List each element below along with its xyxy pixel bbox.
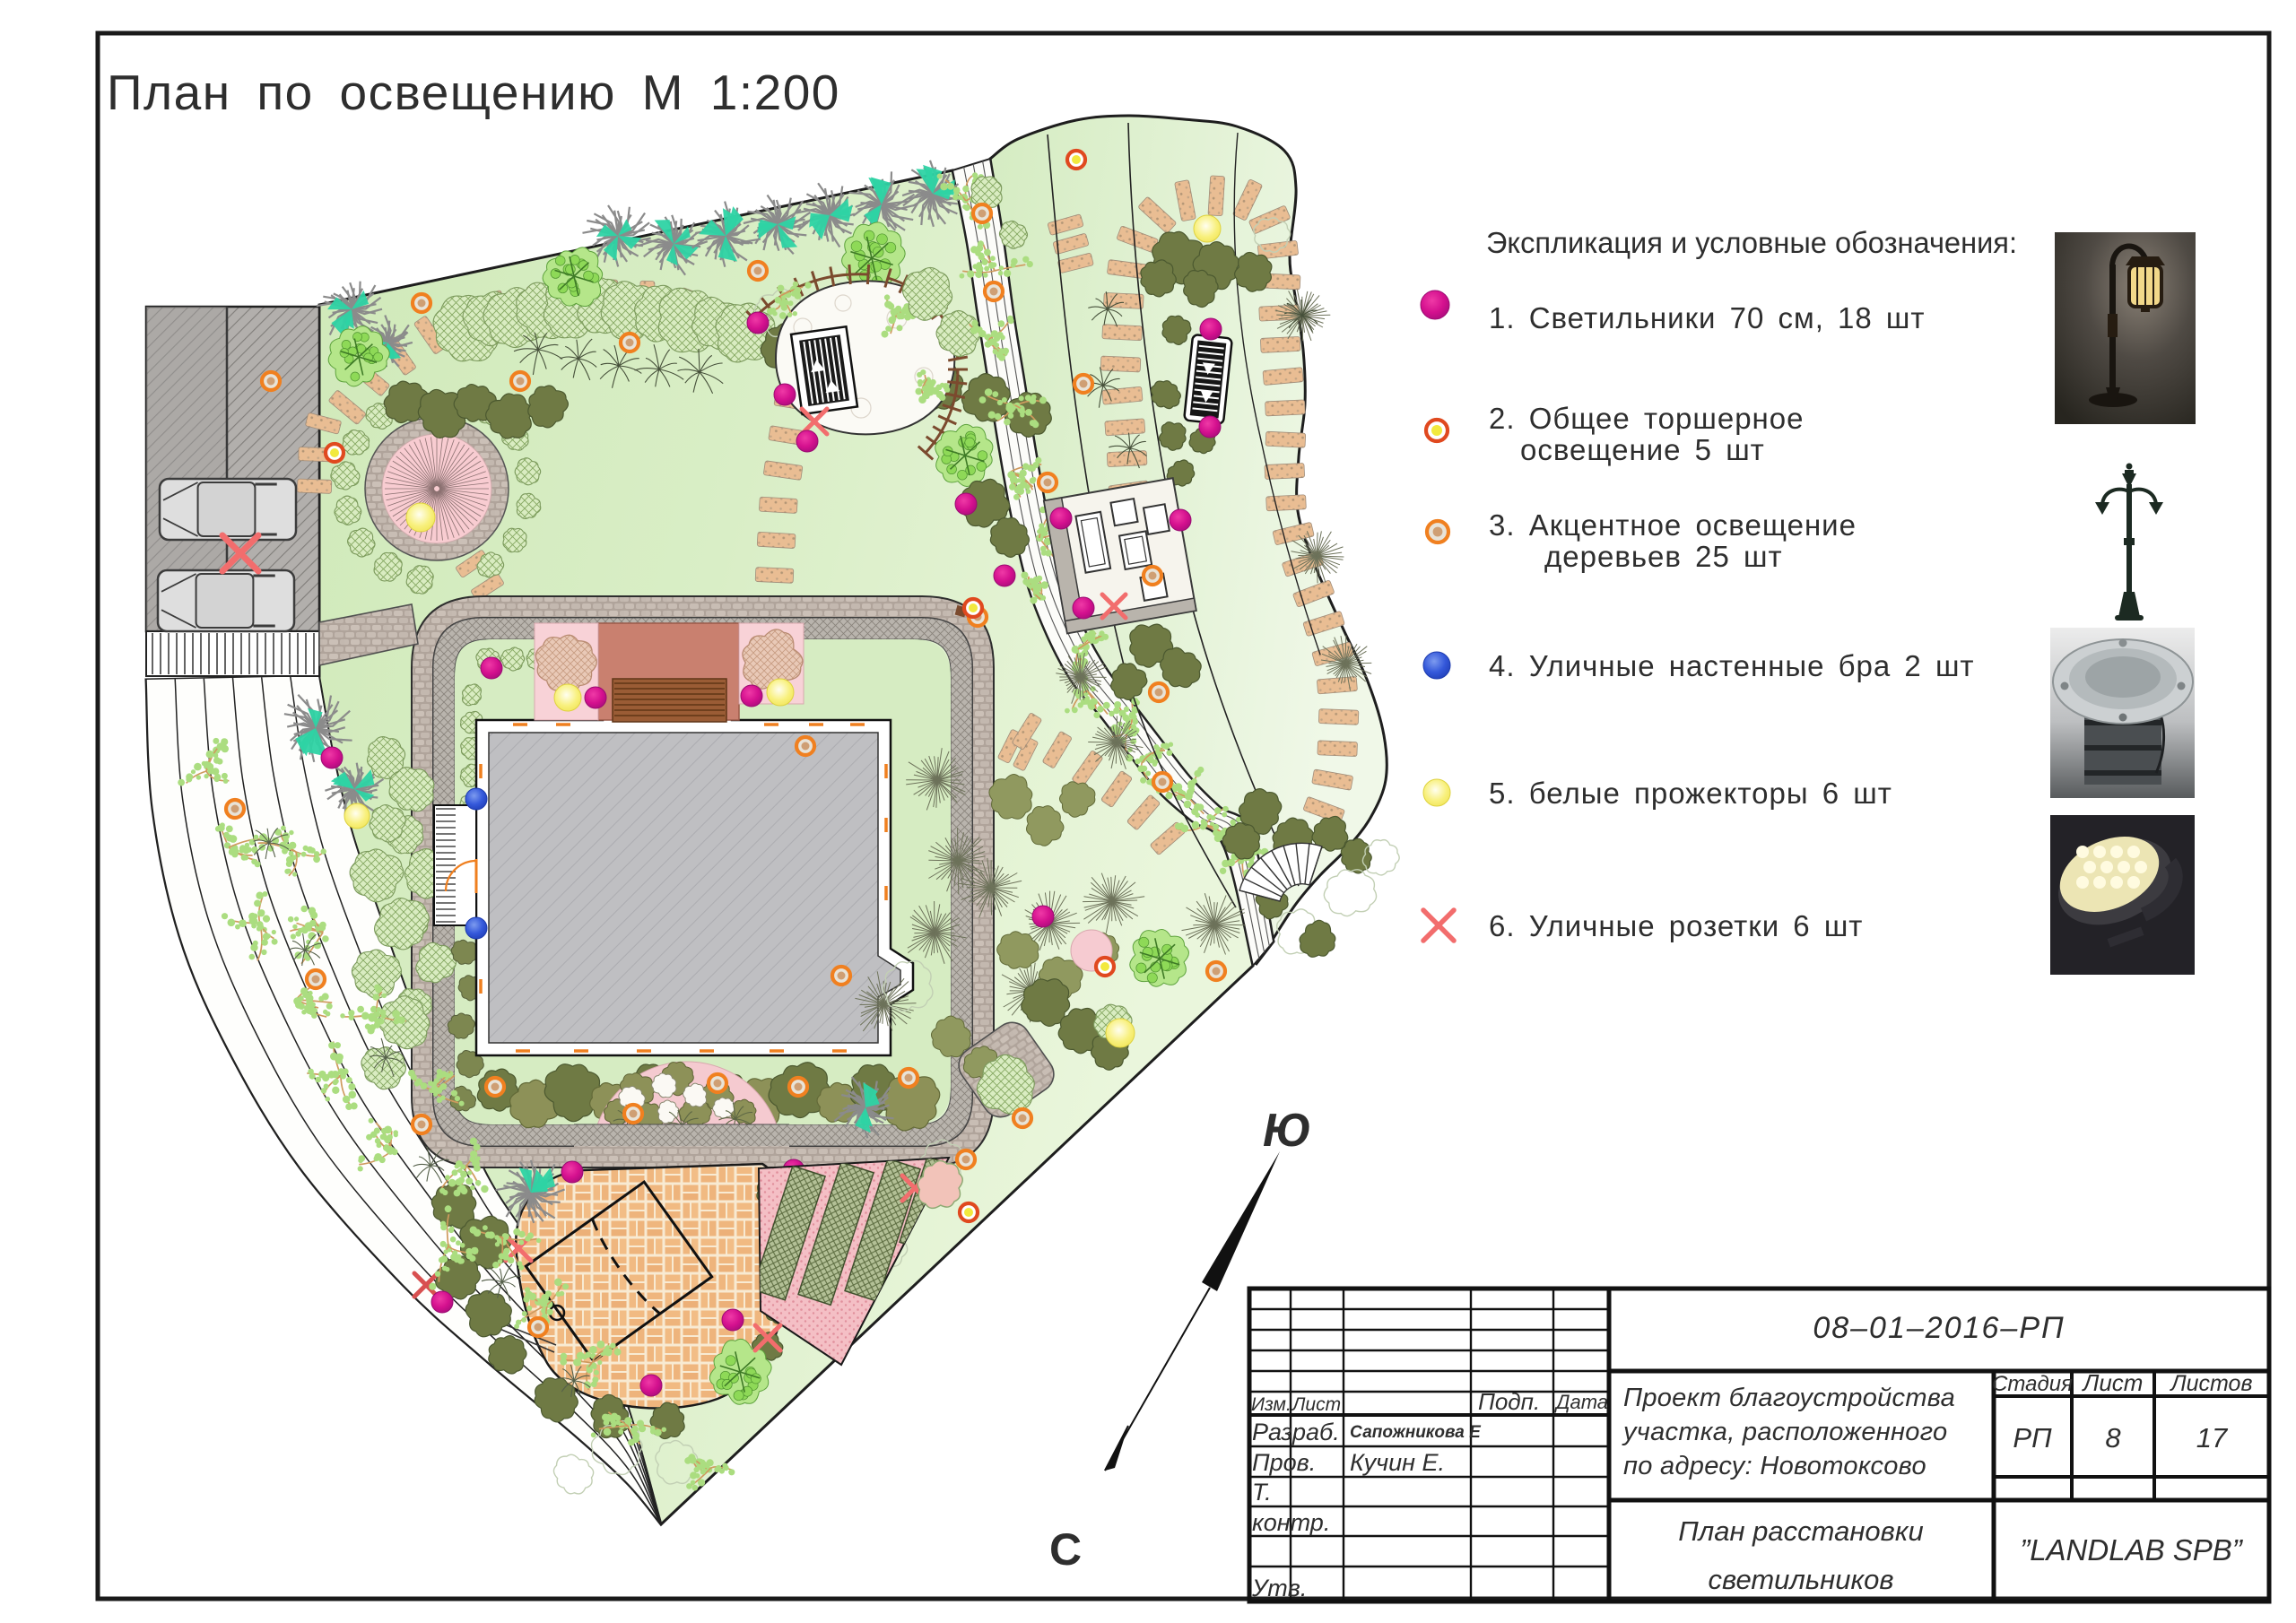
svg-text:по адресу: Новотоксово: по адресу: Новотоксово (1623, 1452, 1926, 1480)
svg-text:Дата: Дата (1553, 1391, 1608, 1413)
svg-text:Подп.: Подп. (1478, 1388, 1540, 1415)
svg-text:План расстановки: План расстановки (1678, 1515, 1923, 1547)
svg-text:Проект благоустройства: Проект благоустройства (1623, 1384, 1955, 1412)
svg-text:Разраб.: Разраб. (1252, 1419, 1340, 1445)
svg-text:17: 17 (2196, 1422, 2229, 1454)
svg-text:светильников: светильников (1708, 1564, 1893, 1595)
svg-text:08–01–2016–РП: 08–01–2016–РП (1813, 1311, 2065, 1345)
svg-text:Ю: Ю (1263, 1105, 1311, 1157)
svg-text:Лист: Лист (1291, 1394, 1341, 1415)
svg-text:Изм.: Изм. (1251, 1394, 1291, 1415)
svg-text:освещение 5 шт: освещение 5 шт (1520, 433, 1765, 466)
svg-text:6. Уличные розетки 6 шт: 6. Уличные розетки 6 шт (1489, 909, 1863, 942)
svg-text:5. белые прожекторы 6 шт: 5. белые прожекторы 6 шт (1489, 777, 1892, 810)
svg-text:”LANDLAB SPB”: ”LANDLAB SPB” (2020, 1533, 2244, 1567)
svg-text:Экспликация и условные обознач: Экспликация и условные обозначения: (1486, 226, 2017, 259)
svg-text:1. Светильники 70 см, 18: 1. Светильники 70 см, 18 шт (1489, 301, 1926, 334)
svg-text:3. Акцентное освещение: 3. Акцентное освещение (1489, 508, 1857, 542)
svg-text:деревьев 25 шт: деревьев 25 шт (1544, 540, 1783, 573)
svg-text:контр.: контр. (1252, 1509, 1330, 1536)
svg-text:участка, расположенного: участка, расположенного (1622, 1418, 1947, 1446)
svg-text:Т.: Т. (1252, 1479, 1272, 1506)
svg-text:Стадия: Стадия (1992, 1372, 2073, 1396)
svg-text:Утв.: Утв. (1251, 1575, 1307, 1601)
svg-text:Пров.: Пров. (1252, 1449, 1316, 1476)
svg-text:Листов: Листов (2169, 1371, 2252, 1396)
svg-text:План по освещению М 1:200: План по освещению М 1:200 (107, 65, 840, 120)
svg-text:РП: РП (2013, 1422, 2052, 1454)
svg-text:2. Общее торшерное: 2. Общее торшерное (1489, 402, 1804, 435)
svg-text:4. Уличные настенные бра 2: 4. Уличные настенные бра 2 шт (1489, 649, 1975, 682)
svg-text:Лист: Лист (2082, 1369, 2144, 1396)
svg-text:Сапожникова Е: Сапожникова Е (1350, 1423, 1482, 1442)
svg-text:8: 8 (2105, 1422, 2121, 1454)
svg-text:Кучин Е.: Кучин Е. (1350, 1449, 1445, 1476)
svg-text:С: С (1049, 1524, 1082, 1575)
